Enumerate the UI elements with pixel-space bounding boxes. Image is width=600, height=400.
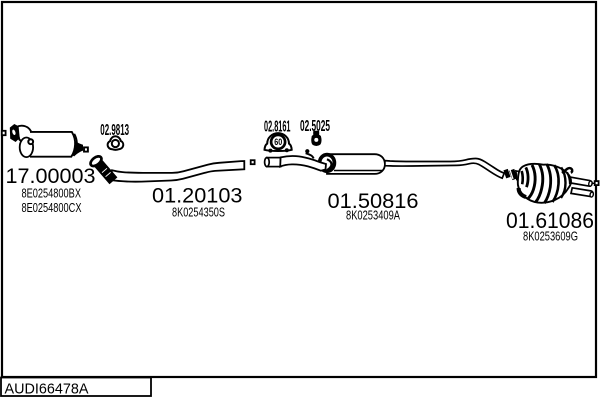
svg-text:8E0254800BX: 8E0254800BX — [22, 187, 82, 201]
svg-text:17.00003: 17.00003 — [6, 164, 96, 188]
svg-text:8K0253609G: 8K0253609G — [523, 230, 578, 244]
svg-text:60: 60 — [274, 137, 282, 147]
svg-text:8K0253409A: 8K0253409A — [346, 209, 400, 223]
svg-text:8K0254350S: 8K0254350S — [172, 206, 225, 220]
svg-text:8E0254800CX: 8E0254800CX — [22, 201, 82, 215]
svg-text:AUDI66478A: AUDI66478A — [5, 381, 89, 398]
svg-text:01.20103: 01.20103 — [152, 184, 243, 208]
